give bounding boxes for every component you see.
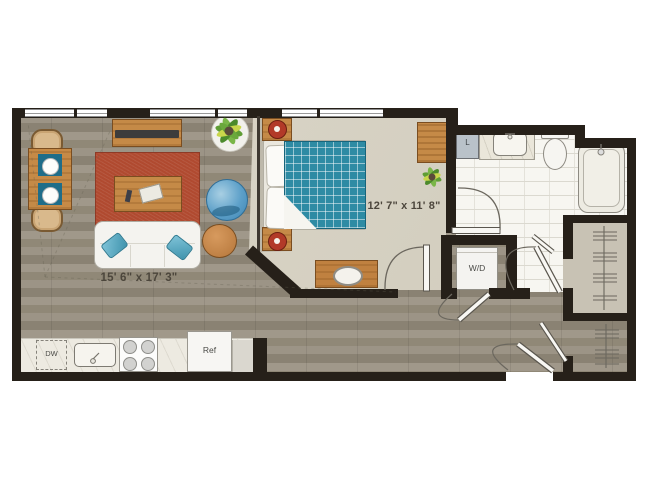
round-side-table (202, 224, 237, 258)
toilet-bowl (543, 138, 567, 170)
sofa-cushion-line-1 (130, 245, 131, 267)
wall-bath-top (448, 125, 585, 135)
wall-kitchen-stub (253, 338, 267, 375)
tv (115, 130, 179, 138)
wall-right (627, 138, 636, 381)
refrigerator-label: Ref (187, 345, 232, 355)
lamp-top-center (274, 126, 280, 132)
bathtub-inner (583, 149, 620, 207)
window-living-2 (150, 109, 247, 117)
plate-bottom (42, 187, 59, 204)
window-living-1 (25, 109, 107, 117)
burner-3 (123, 357, 137, 371)
dresser (417, 122, 447, 163)
wall-closet-west-lower (563, 288, 573, 315)
lamp-bottom-center (274, 238, 280, 244)
dishwasher-label: DW (36, 349, 67, 358)
burner-4 (141, 357, 155, 371)
closet-door-threshold (563, 257, 574, 290)
wall-wd-stub-left (441, 288, 457, 299)
living-room-dimensions: 15' 6" x 17' 3" (89, 272, 189, 284)
wall-left (12, 108, 21, 381)
wall-bedroom-east (446, 116, 456, 233)
floor-plan: DW Ref L W/D (0, 0, 650, 490)
wall-wd-stub-right (489, 288, 530, 299)
vanity-sink (493, 132, 527, 156)
sofa-cushion-line-2 (164, 245, 165, 267)
wall-wd-right (506, 235, 517, 295)
kitchen-end-cabinet (232, 340, 254, 372)
window-bedroom (282, 109, 383, 117)
linen-closet-label: L (456, 138, 479, 147)
bedroom-dimensions: 12' 7" x 11' 8" (354, 200, 454, 212)
wall-closet-divider (563, 313, 636, 321)
closet-floor (573, 222, 627, 313)
burner-2 (141, 340, 155, 354)
burner-1 (123, 340, 137, 354)
wall-closet-b-stub (563, 356, 573, 374)
window-mullion-1 (74, 108, 77, 118)
kitchen-sink (74, 343, 116, 367)
window-mullion-2 (215, 108, 218, 118)
bench-bowl (333, 266, 363, 286)
plant-saucer (211, 114, 249, 152)
living-bedroom-divider (257, 116, 260, 252)
wall-bedroom-south (290, 289, 398, 298)
plate-top (42, 158, 59, 175)
washer-dryer-top-line (457, 252, 497, 253)
window-mullion-3 (317, 108, 320, 118)
wall-closet-top (563, 215, 636, 223)
washer-dryer-label: W/D (456, 263, 498, 273)
wall-closet-west-upper (563, 215, 573, 259)
